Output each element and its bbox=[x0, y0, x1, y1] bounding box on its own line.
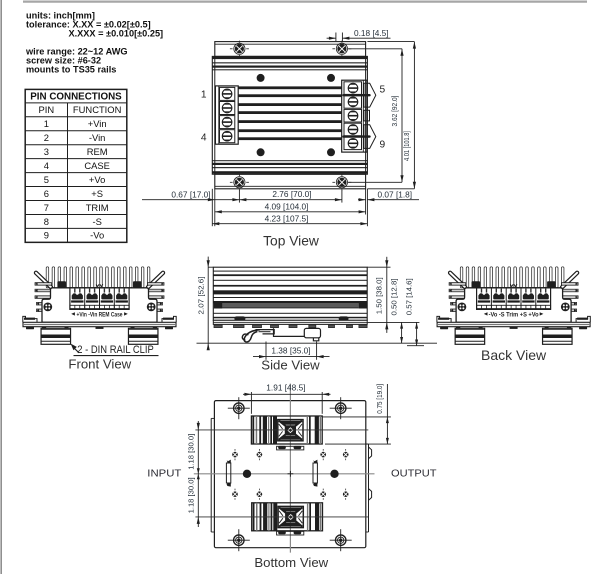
svg-text:+Vin -Vin REM Case: +Vin -Vin REM Case bbox=[77, 311, 123, 318]
svg-text:4: 4 bbox=[201, 132, 207, 143]
svg-text:1.50 [38.0]: 1.50 [38.0] bbox=[375, 277, 384, 314]
svg-text:4.01 [101.8]: 4.01 [101.8] bbox=[402, 131, 411, 161]
svg-text:0.18 [4.5]: 0.18 [4.5] bbox=[354, 28, 389, 38]
svg-text:6: 6 bbox=[44, 188, 49, 199]
svg-text:1.38 [35.0]: 1.38 [35.0] bbox=[271, 346, 310, 356]
svg-text:0.57 [14.6]: 0.57 [14.6] bbox=[405, 278, 414, 315]
svg-text:Side View: Side View bbox=[261, 358, 320, 373]
svg-text:-Vo -S Trim +S +Vo: -Vo -S Trim +S +Vo bbox=[489, 311, 539, 318]
svg-text:9: 9 bbox=[380, 140, 386, 151]
svg-text:FUNCTION: FUNCTION bbox=[73, 104, 121, 115]
svg-text:4: 4 bbox=[44, 160, 49, 171]
svg-text:2.76 [70.0]: 2.76 [70.0] bbox=[272, 189, 311, 199]
svg-text:1.18 [30.0]: 1.18 [30.0] bbox=[186, 477, 195, 513]
svg-text:1.18 [30.0]: 1.18 [30.0] bbox=[186, 434, 195, 470]
svg-text:1: 1 bbox=[44, 118, 49, 129]
svg-text:4.09 [104.0]: 4.09 [104.0] bbox=[265, 202, 309, 212]
svg-text:2: 2 bbox=[44, 132, 49, 143]
svg-text:+Vin: +Vin bbox=[88, 118, 107, 129]
svg-text:X.XXX = ±0.010[±0.25]: X.XXX = ±0.010[±0.25] bbox=[69, 28, 164, 38]
svg-text:PIN CONNECTIONS: PIN CONNECTIONS bbox=[30, 92, 122, 103]
svg-text:TRIM: TRIM bbox=[86, 202, 109, 213]
svg-text:0.75 [19.0]: 0.75 [19.0] bbox=[375, 384, 384, 414]
svg-text:8: 8 bbox=[44, 216, 49, 227]
svg-text:Front View: Front View bbox=[68, 356, 131, 371]
svg-text:Top View: Top View bbox=[263, 234, 319, 249]
svg-text:-Vin: -Vin bbox=[89, 132, 106, 143]
svg-text:-S: -S bbox=[92, 216, 101, 227]
svg-text:1.91 [48.5]: 1.91 [48.5] bbox=[266, 383, 305, 393]
svg-text:0.07 [1.8]: 0.07 [1.8] bbox=[378, 189, 413, 199]
svg-text:0.50 [12.8]: 0.50 [12.8] bbox=[389, 279, 398, 316]
svg-text:4.23 [107.5]: 4.23 [107.5] bbox=[265, 213, 309, 223]
svg-text:7: 7 bbox=[44, 202, 49, 213]
svg-text:-Vo: -Vo bbox=[90, 230, 104, 241]
svg-text:Bottom View: Bottom View bbox=[254, 555, 328, 570]
svg-text:0.67 [17.0]: 0.67 [17.0] bbox=[171, 189, 210, 199]
svg-text:5: 5 bbox=[44, 174, 49, 185]
svg-text:5: 5 bbox=[380, 85, 386, 96]
svg-text:CASE: CASE bbox=[84, 160, 110, 171]
svg-text:3.62 [92.0]: 3.62 [92.0] bbox=[390, 96, 399, 127]
svg-text:OUTPUT: OUTPUT bbox=[391, 468, 437, 479]
svg-text:REM: REM bbox=[87, 146, 108, 157]
svg-text:Back View: Back View bbox=[481, 347, 547, 363]
svg-text:mounts to TS35 rails: mounts to TS35 rails bbox=[26, 64, 116, 74]
svg-text:PIN: PIN bbox=[39, 104, 55, 115]
svg-text:+Vo: +Vo bbox=[89, 174, 105, 185]
svg-text:2 - DIN RAIL CLIP: 2 - DIN RAIL CLIP bbox=[77, 344, 154, 356]
svg-text:3: 3 bbox=[44, 146, 49, 157]
svg-text:2.07 [52.6]: 2.07 [52.6] bbox=[196, 277, 205, 315]
svg-text:9: 9 bbox=[44, 230, 49, 241]
svg-text:1: 1 bbox=[201, 90, 207, 101]
svg-text:+S: +S bbox=[91, 188, 103, 199]
svg-text:INPUT: INPUT bbox=[147, 468, 181, 479]
